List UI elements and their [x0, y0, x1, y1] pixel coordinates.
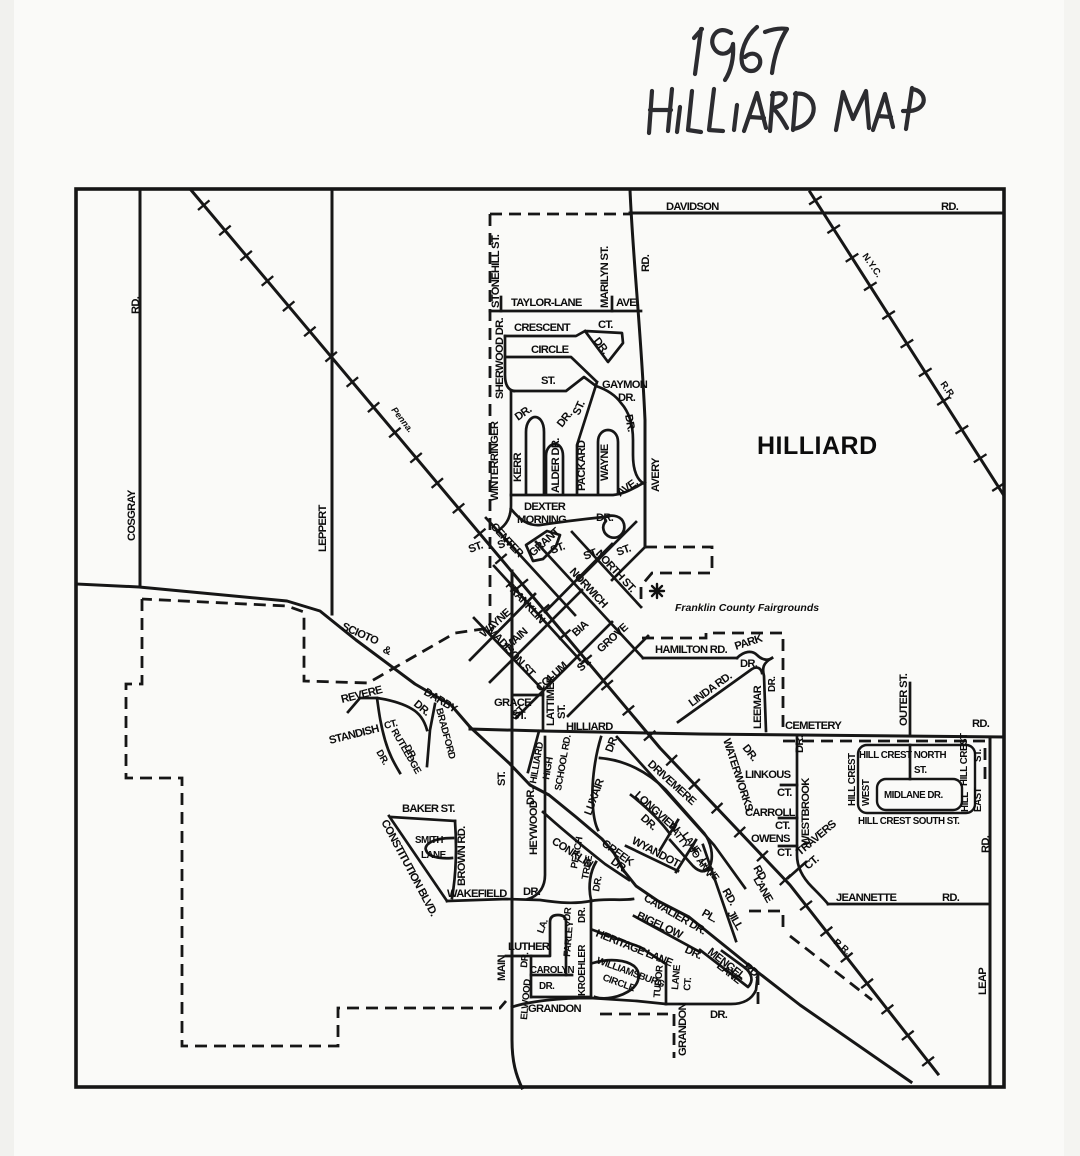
svg-text:KROEHLER: KROEHLER: [577, 945, 588, 996]
svg-text:MAIN: MAIN: [496, 955, 508, 981]
svg-text:CT.: CT.: [777, 787, 792, 799]
svg-text:LEPPERT: LEPPERT: [317, 504, 329, 552]
svg-text:TAYLOR-LANE: TAYLOR-LANE: [511, 297, 583, 309]
svg-text:CT.: CT.: [775, 820, 790, 832]
svg-text:DAVIDSON: DAVIDSON: [666, 201, 719, 213]
svg-text:HILLIARD: HILLIARD: [566, 721, 613, 733]
svg-text:DR: DR: [562, 907, 574, 921]
svg-text:ST.: ST.: [512, 710, 527, 722]
svg-text:LINKOUS: LINKOUS: [745, 769, 792, 781]
svg-text:CT.: CT.: [777, 847, 792, 859]
svg-text:OWENS: OWENS: [751, 833, 791, 845]
svg-text:CIRCLE: CIRCLE: [531, 344, 570, 356]
svg-text:LANE: LANE: [421, 850, 447, 861]
svg-text:ALDER DR.: ALDER DR.: [550, 438, 562, 493]
svg-text:DR.: DR.: [794, 735, 806, 753]
svg-text:ST.: ST.: [496, 771, 508, 786]
svg-text:BAKER ST.: BAKER ST.: [402, 803, 455, 815]
svg-text:DR.: DR.: [767, 676, 778, 692]
svg-text:RD.: RD.: [942, 892, 960, 904]
svg-text:BROWN RD.: BROWN RD.: [456, 826, 468, 886]
svg-text:MIDLANE DR.: MIDLANE DR.: [884, 790, 943, 801]
svg-text:GAYMON: GAYMON: [602, 379, 648, 391]
svg-text:RD.: RD.: [640, 254, 652, 272]
svg-text:CT.: CT.: [682, 976, 694, 991]
svg-text:LEAP: LEAP: [977, 967, 989, 995]
svg-text:COSGRAY: COSGRAY: [126, 489, 138, 541]
svg-text:CT.: CT.: [598, 319, 613, 331]
svg-text:JEANNETTE: JEANNETTE: [836, 892, 897, 904]
svg-text:DR.: DR.: [519, 951, 531, 968]
svg-text:MARILYN ST.: MARILYN ST.: [599, 246, 611, 308]
svg-text:HILLIARD: HILLIARD: [757, 432, 878, 460]
svg-text:ST.: ST.: [914, 765, 927, 776]
svg-text:HAMILTON RD.: HAMILTON RD.: [655, 644, 728, 656]
svg-text:ST.: ST.: [973, 749, 984, 762]
svg-text:WINTERRINGER: WINTERRINGER: [489, 421, 501, 501]
svg-text:LANE: LANE: [670, 964, 683, 990]
svg-text:DR.: DR.: [710, 1009, 728, 1021]
svg-text:RD.: RD.: [130, 296, 142, 314]
svg-text:ST.: ST.: [556, 704, 568, 719]
svg-text:HILL CREST: HILL CREST: [959, 733, 970, 786]
svg-text:EAST: EAST: [973, 787, 984, 812]
svg-text:DR.: DR.: [618, 392, 636, 404]
svg-text:RD.: RD.: [972, 718, 990, 730]
svg-text:GRANDON: GRANDON: [677, 1002, 689, 1056]
svg-text:LUTHER: LUTHER: [508, 941, 550, 953]
svg-text:WAKEFIELD: WAKEFIELD: [447, 888, 507, 900]
svg-text:GRANDON: GRANDON: [528, 1003, 582, 1015]
svg-text:RD.: RD.: [980, 835, 992, 853]
svg-text:RD.: RD.: [941, 201, 959, 213]
svg-text:HILL CREST NORTH: HILL CREST NORTH: [859, 750, 946, 761]
svg-text:Franklin County Fairgrounds: Franklin County Fairgrounds: [675, 602, 819, 614]
svg-text:GRACE: GRACE: [494, 697, 532, 709]
svg-text:WEST: WEST: [861, 779, 872, 806]
svg-text:HILL CREST: HILL CREST: [847, 753, 858, 806]
svg-text:KERR: KERR: [512, 452, 524, 482]
svg-text:AVERY: AVERY: [650, 457, 662, 492]
svg-text:PACKARD: PACKARD: [576, 440, 588, 491]
svg-text:AVE.: AVE.: [616, 297, 639, 309]
svg-text:CAROLYN: CAROLYN: [530, 965, 574, 976]
svg-text:DR.: DR.: [577, 907, 588, 923]
svg-text:SMITH: SMITH: [415, 835, 443, 846]
svg-text:CRESCENT: CRESCENT: [514, 322, 571, 334]
svg-text:OUTER ST.: OUTER ST.: [898, 673, 910, 726]
svg-text:DR.: DR.: [539, 981, 555, 992]
svg-text:DR.: DR.: [525, 787, 537, 805]
svg-text:LEEMAR: LEEMAR: [752, 685, 764, 729]
svg-text:HEYWOOD: HEYWOOD: [528, 800, 540, 855]
svg-text:WAYNE: WAYNE: [599, 443, 611, 481]
svg-text:ST.: ST.: [541, 375, 556, 387]
svg-text:HILL CREST SOUTH ST.: HILL CREST SOUTH ST.: [858, 816, 960, 827]
svg-text:CEMETERY: CEMETERY: [785, 720, 842, 732]
svg-text:HILL: HILL: [960, 792, 971, 812]
svg-text:DEXTER: DEXTER: [524, 501, 566, 513]
